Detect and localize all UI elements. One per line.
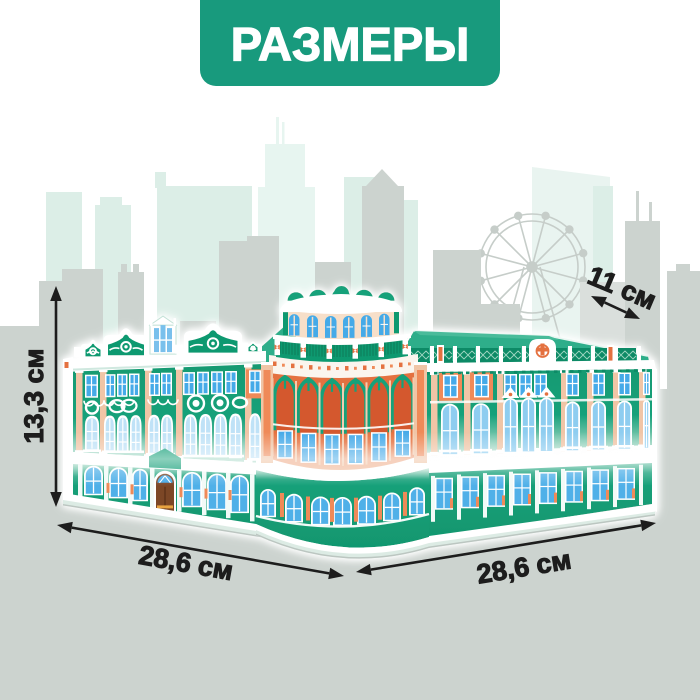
- svg-text:РАЗМЕРЫ: РАЗМЕРЫ: [231, 18, 469, 71]
- svg-text:13,3 см: 13,3 см: [19, 348, 49, 443]
